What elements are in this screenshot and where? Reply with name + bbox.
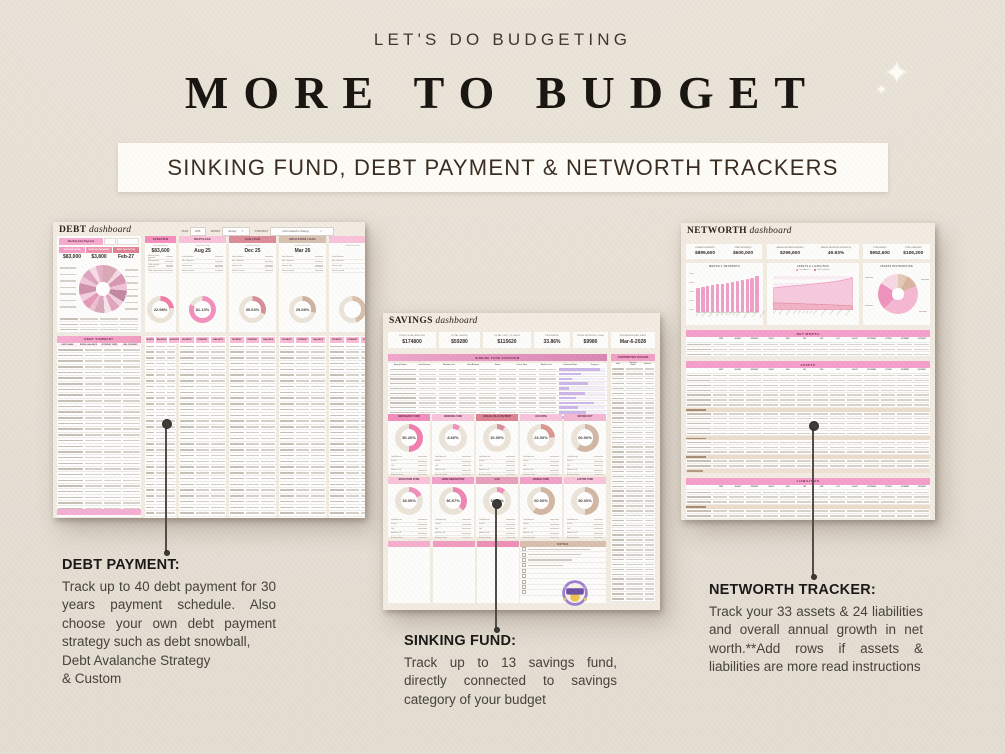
cell-value bbox=[346, 455, 360, 457]
cell-value bbox=[763, 515, 778, 516]
cell-value bbox=[296, 443, 310, 445]
cell-value bbox=[713, 442, 728, 443]
cell-value bbox=[713, 418, 728, 419]
cell-value bbox=[261, 443, 275, 445]
cell-value bbox=[230, 374, 244, 376]
column-header: INTEREST bbox=[195, 336, 211, 344]
column-header: INTEREST RATE bbox=[99, 343, 120, 348]
cell-value bbox=[864, 496, 879, 497]
cell-value bbox=[123, 372, 140, 374]
cell-value bbox=[729, 394, 744, 395]
cell-value bbox=[914, 375, 929, 376]
cell-value bbox=[346, 374, 360, 376]
row-value bbox=[550, 474, 559, 475]
cell-value bbox=[146, 478, 154, 480]
cell-value bbox=[280, 484, 294, 486]
cell-value bbox=[729, 496, 744, 497]
cell-value bbox=[626, 520, 643, 522]
cell-value bbox=[211, 455, 225, 457]
cell-value bbox=[230, 512, 244, 514]
cell-value bbox=[361, 449, 365, 451]
cell-value bbox=[296, 512, 310, 514]
cell-value bbox=[612, 539, 624, 541]
column-header: FEBRUARY bbox=[746, 487, 763, 488]
cell-value bbox=[499, 378, 516, 379]
cell-value bbox=[612, 588, 624, 590]
cell-value bbox=[797, 390, 812, 391]
cell-value bbox=[311, 501, 325, 503]
debt-stats-row: TOTAL BALANCE$83,000MONTHLY PAYMENTS$3,8… bbox=[59, 247, 139, 262]
cell-value bbox=[914, 390, 929, 391]
cell-value bbox=[361, 426, 365, 428]
cell-value bbox=[80, 329, 98, 331]
cell-value bbox=[104, 349, 121, 351]
chevron-down-icon: ▾ bbox=[320, 230, 321, 233]
control-value-box[interactable]: January▾ bbox=[222, 227, 250, 236]
row-value bbox=[315, 256, 323, 257]
cell-value bbox=[897, 423, 912, 424]
cell-value bbox=[626, 598, 643, 600]
cell-value bbox=[196, 392, 210, 394]
cell-value bbox=[797, 380, 812, 381]
annotation-body: & Custom bbox=[62, 670, 276, 688]
savings-card-header: MOVING OUT bbox=[564, 414, 606, 421]
cell-value bbox=[914, 404, 929, 405]
cell-value bbox=[499, 383, 516, 384]
cell-value bbox=[246, 466, 260, 468]
stat-label: TOTAL LEFT TO SAVE bbox=[494, 335, 520, 337]
progress-cell bbox=[559, 373, 605, 376]
axis-label bbox=[689, 291, 694, 292]
cell-value bbox=[146, 438, 154, 440]
progress-bar bbox=[559, 382, 588, 385]
cell-value bbox=[626, 437, 643, 439]
donut-percent-label: 10.00% bbox=[490, 435, 504, 440]
cell-value bbox=[626, 373, 643, 375]
cell-value bbox=[713, 515, 728, 516]
cell-value bbox=[196, 374, 210, 376]
column-header: PAYMENT bbox=[279, 336, 295, 344]
cell-value bbox=[311, 472, 325, 474]
cell-value bbox=[763, 460, 778, 461]
cell-value bbox=[914, 433, 929, 434]
cell-value bbox=[797, 354, 812, 355]
cell-value bbox=[296, 478, 310, 480]
cell-value bbox=[914, 394, 929, 395]
cell-value bbox=[85, 406, 102, 408]
cell-value bbox=[361, 374, 365, 376]
cell-value bbox=[146, 397, 154, 399]
cell-value bbox=[645, 500, 654, 502]
cell-value bbox=[296, 374, 310, 376]
sheet-title: SAVINGS dashboard bbox=[389, 316, 477, 326]
cell-value bbox=[311, 380, 325, 382]
column-header: OCTOBER bbox=[880, 339, 897, 340]
row-label-bar bbox=[687, 501, 711, 502]
cell-value bbox=[729, 399, 744, 400]
cell-value bbox=[390, 374, 416, 375]
cell-value bbox=[211, 449, 225, 451]
cell-value bbox=[881, 496, 896, 497]
cell-value bbox=[58, 377, 83, 379]
cell-value bbox=[813, 390, 828, 391]
contribution-tracker-table: DateSavings NameAmount bbox=[611, 363, 655, 602]
column-header: MARCH bbox=[763, 339, 780, 340]
sinking-fund-table: Savings NameGoal AmountMonthly GoalStart… bbox=[388, 363, 607, 420]
cell-value bbox=[280, 386, 294, 388]
cell-value bbox=[311, 432, 325, 434]
cell-value bbox=[499, 407, 516, 408]
axis-tick: DECEMBER bbox=[845, 312, 854, 313]
cell-value bbox=[797, 375, 812, 376]
cell-value bbox=[330, 403, 344, 405]
savings-card-header: VACATION bbox=[520, 414, 562, 421]
cell-value bbox=[100, 324, 118, 326]
table-header-row: Savings NameGoal AmountMonthly GoalStart… bbox=[388, 363, 607, 368]
debt-summary-panel: Monthly Extra PaymentTOTAL BALANCE$83,00… bbox=[57, 236, 141, 332]
cell-value bbox=[156, 374, 164, 376]
cell-value bbox=[146, 415, 154, 417]
cell-value bbox=[419, 388, 436, 389]
cell-value bbox=[156, 507, 164, 509]
progress-bar bbox=[559, 392, 584, 395]
cell-value bbox=[914, 510, 929, 511]
row-label: Goal Amount bbox=[523, 456, 534, 458]
cell-value bbox=[479, 402, 496, 403]
savings-card-donut: 60.00% bbox=[527, 487, 555, 515]
axis-tick: JANUARY bbox=[701, 314, 708, 315]
cell-value bbox=[797, 501, 812, 502]
cell-value bbox=[146, 374, 154, 376]
table-banner: NET WORTH bbox=[686, 330, 930, 337]
chart-legend: Total AssetsTotal Liabilities bbox=[767, 269, 859, 271]
cell-value bbox=[180, 472, 194, 474]
cell-value bbox=[146, 369, 154, 371]
cell-value bbox=[780, 404, 795, 405]
cell-value bbox=[612, 598, 624, 600]
cell-value bbox=[180, 397, 194, 399]
column-header: JUNE bbox=[813, 339, 830, 340]
cell-value bbox=[763, 496, 778, 497]
cell-value bbox=[280, 489, 294, 491]
stat-cell: CURRENT NETWORTH$899,600 bbox=[686, 244, 724, 259]
cell-value bbox=[311, 443, 325, 445]
cell-value bbox=[813, 399, 828, 400]
table-header-row: DEBT NAMEINITIAL BALANCEINTEREST RATEMIN… bbox=[57, 343, 141, 348]
cell-value bbox=[645, 510, 654, 512]
cell-value bbox=[104, 394, 121, 396]
cell-value bbox=[713, 344, 728, 345]
row-label: Saved bbox=[479, 460, 484, 462]
column-header: NOVEMBER bbox=[897, 339, 914, 340]
row-value bbox=[594, 524, 603, 525]
stat-label: START NETWORTH bbox=[735, 247, 752, 249]
row-label: Estimate Date bbox=[479, 537, 491, 539]
cell-value bbox=[361, 409, 365, 411]
cell-value bbox=[645, 559, 654, 561]
cell-value bbox=[104, 468, 121, 470]
column-header: Savings Name bbox=[388, 363, 412, 368]
cell-value bbox=[311, 403, 325, 405]
legend-item: Total Liabilities bbox=[814, 269, 830, 271]
cell-value bbox=[180, 380, 194, 382]
cell-value bbox=[746, 451, 761, 452]
cell-value bbox=[104, 497, 121, 499]
cell-value bbox=[261, 501, 275, 503]
cell-value bbox=[763, 375, 778, 376]
cell-value bbox=[626, 554, 643, 556]
stat-label: TOTAL GOAL AMOUNT bbox=[399, 335, 425, 337]
cell-value bbox=[713, 413, 728, 414]
cell-value bbox=[729, 404, 744, 405]
cell-value bbox=[763, 465, 778, 466]
cell-value bbox=[230, 484, 244, 486]
cell-value bbox=[311, 507, 325, 509]
cell-value bbox=[763, 447, 778, 448]
cell-value bbox=[780, 390, 795, 391]
cell-value bbox=[645, 530, 654, 532]
cell-value bbox=[539, 397, 556, 398]
cell-value bbox=[746, 515, 761, 516]
cell-value bbox=[729, 465, 744, 466]
cell-value bbox=[780, 423, 795, 424]
cell-value bbox=[330, 484, 344, 486]
cell-value bbox=[361, 415, 365, 417]
savings-card-header: WEDDING FUND bbox=[432, 414, 474, 421]
cell-value bbox=[180, 466, 194, 468]
stat-value: Mar-6-2028 bbox=[620, 339, 646, 345]
cell-value bbox=[645, 471, 654, 473]
cell-value bbox=[813, 501, 828, 502]
cell-value bbox=[864, 394, 879, 395]
sinking-annotation-line bbox=[495, 505, 497, 629]
cell-value bbox=[346, 478, 360, 480]
cell-value bbox=[261, 403, 275, 405]
cell-value bbox=[746, 394, 761, 395]
cell-value bbox=[123, 451, 140, 453]
cell-value bbox=[156, 484, 164, 486]
column-header: JUNE bbox=[813, 370, 830, 371]
cell-value bbox=[713, 451, 728, 452]
cell-value bbox=[612, 422, 624, 424]
promo-poster: LET'S DO BUDGETING MORE TO BUDGET ✦ ✦ SI… bbox=[0, 0, 1005, 754]
debt-card-row: Total interest saved bbox=[148, 269, 173, 274]
row-label: Interest rate bbox=[232, 265, 242, 267]
cell-value bbox=[612, 427, 624, 429]
row-value bbox=[165, 261, 173, 262]
cell-value bbox=[58, 491, 83, 493]
cell-value bbox=[280, 449, 294, 451]
cell-value bbox=[311, 346, 325, 348]
cell-value bbox=[280, 415, 294, 417]
row-label: Months Left bbox=[567, 532, 577, 534]
savings-card-rows: Goal AmountSavedLeftMonths LeftEstimate … bbox=[391, 518, 427, 541]
cell-value bbox=[211, 415, 225, 417]
cell-value bbox=[280, 392, 294, 394]
control-value: Debt Avalanche Strategy bbox=[283, 230, 309, 233]
row-label: Min. Payment bbox=[182, 260, 194, 262]
savings-card: HOME RENOVATION36.67%Goal AmountSavedLef… bbox=[432, 477, 474, 537]
cell-value bbox=[797, 404, 812, 405]
cell-value bbox=[296, 426, 310, 428]
cell-value bbox=[296, 507, 310, 509]
cell-value bbox=[813, 413, 828, 414]
cell-value bbox=[346, 363, 360, 365]
row-label: Monthly extra payment bbox=[148, 255, 166, 259]
cell-value bbox=[346, 461, 360, 463]
control-value-box[interactable]: 2025 bbox=[190, 227, 206, 236]
cell-value bbox=[830, 460, 845, 461]
cell-value bbox=[156, 512, 164, 514]
cell-value bbox=[612, 534, 624, 536]
cell-value bbox=[211, 403, 225, 405]
cell-value bbox=[897, 496, 912, 497]
cell-value bbox=[864, 380, 879, 381]
networth-annotation: NETWORTH TRACKER: Track your 33 assets &… bbox=[709, 581, 923, 677]
cell-value bbox=[361, 392, 365, 394]
cell-value bbox=[280, 403, 294, 405]
cell-value bbox=[361, 420, 365, 422]
cell-value bbox=[479, 393, 496, 394]
row-label: Estimate Date bbox=[391, 474, 403, 476]
debt-card-header bbox=[329, 236, 365, 243]
cell-value bbox=[626, 530, 643, 532]
cell-value bbox=[797, 349, 812, 350]
cell-value bbox=[626, 574, 643, 576]
cell-value bbox=[58, 383, 83, 385]
cell-value bbox=[612, 456, 624, 458]
cell-value bbox=[296, 397, 310, 399]
cell-value bbox=[612, 569, 624, 571]
cell-value bbox=[626, 534, 643, 536]
column-header: Estimated Date bbox=[558, 363, 582, 368]
row-label: Min. Payment bbox=[232, 260, 244, 262]
cell-value bbox=[330, 501, 344, 503]
payment-schedule-table: PAYMENTINTERESTBALANCE bbox=[179, 336, 226, 518]
row-label: Min. Payment bbox=[332, 260, 344, 262]
cell-value bbox=[123, 502, 140, 504]
cell-value bbox=[864, 354, 879, 355]
cell-value bbox=[85, 411, 102, 413]
cell-value bbox=[330, 363, 344, 365]
cell-value bbox=[156, 438, 164, 440]
row-label: Goal Amount bbox=[435, 519, 446, 521]
stat-label: ESTIMATED END DATE bbox=[620, 335, 647, 337]
cell-value bbox=[459, 407, 476, 408]
cell-value bbox=[261, 478, 275, 480]
cell-value bbox=[146, 501, 154, 503]
cell-value bbox=[211, 420, 225, 422]
cell-value bbox=[246, 489, 260, 491]
cell-value bbox=[419, 397, 436, 398]
cell-value bbox=[167, 415, 175, 417]
cell-value bbox=[645, 446, 654, 448]
cell-value bbox=[519, 407, 536, 408]
donut-hole: 8.60% bbox=[445, 429, 462, 446]
cell-value bbox=[881, 344, 896, 345]
cell-value bbox=[897, 460, 912, 461]
cell-value bbox=[830, 510, 845, 511]
cell-value bbox=[167, 512, 175, 514]
debt-card-rows: Initial balanceMin. PaymentInterest rate… bbox=[232, 255, 273, 273]
stat-block: ANNUAL NETWORTH GROWTH$299,600ANNUAL NET… bbox=[767, 244, 859, 259]
column-header: DEBT NAME bbox=[57, 343, 78, 348]
row-label-bar bbox=[687, 442, 711, 443]
cell-value bbox=[85, 446, 102, 448]
donut-label bbox=[125, 269, 138, 271]
axis-tick: NOVEMBER bbox=[836, 312, 845, 313]
cell-value bbox=[230, 380, 244, 382]
cell-value bbox=[261, 346, 275, 348]
cell-value bbox=[361, 380, 365, 382]
cell-value bbox=[830, 418, 845, 419]
cell-value bbox=[196, 443, 210, 445]
bar bbox=[741, 280, 745, 312]
cell-value bbox=[881, 465, 896, 466]
cell-value bbox=[881, 433, 896, 434]
row-value bbox=[550, 533, 559, 534]
control-value-box[interactable]: Debt Avalanche Strategy▾ bbox=[270, 227, 334, 236]
cell-value bbox=[881, 515, 896, 516]
cell-value bbox=[123, 360, 140, 362]
cell-value bbox=[626, 466, 643, 468]
extra-payment-value-box[interactable] bbox=[117, 238, 139, 245]
bar bbox=[736, 281, 740, 312]
donut-label bbox=[865, 305, 873, 306]
cell-value bbox=[645, 490, 654, 492]
savings-card-header: MOBILE FUND bbox=[520, 477, 562, 484]
cell-value bbox=[296, 438, 310, 440]
cell-value bbox=[211, 392, 225, 394]
cell-value bbox=[296, 351, 310, 353]
cell-value bbox=[58, 434, 83, 436]
cell-value bbox=[280, 363, 294, 365]
stat-block: TOTAL ASSETS$952,600TOTAL LIABILITIES$10… bbox=[863, 244, 930, 259]
cell-value bbox=[847, 447, 862, 448]
cell-value bbox=[645, 588, 654, 590]
row-label-bar bbox=[687, 354, 711, 355]
bar bbox=[726, 283, 730, 312]
cell-value bbox=[246, 495, 260, 497]
cell-value bbox=[85, 383, 102, 385]
cell-value bbox=[645, 466, 654, 468]
cell-value bbox=[156, 380, 164, 382]
cell-value bbox=[246, 369, 260, 371]
row-label: Estimate Date bbox=[391, 537, 403, 539]
cell-value bbox=[612, 432, 624, 434]
cell-value bbox=[864, 418, 879, 419]
cell-value bbox=[830, 447, 845, 448]
cell-value bbox=[914, 423, 929, 424]
progress-bar bbox=[559, 397, 575, 400]
cell-value bbox=[713, 433, 728, 434]
cell-value bbox=[246, 484, 260, 486]
cell-value bbox=[196, 403, 210, 405]
progress-bar bbox=[559, 368, 599, 371]
stat-value: $106,200 bbox=[903, 251, 923, 256]
cell-value bbox=[58, 474, 83, 476]
cell-value bbox=[156, 397, 164, 399]
annotation-body: Track up to 40 debt payment for 30 years… bbox=[62, 578, 276, 652]
cell-value bbox=[180, 392, 194, 394]
cell-value bbox=[296, 472, 310, 474]
cell-value bbox=[439, 378, 456, 379]
networth-title-word: dashboard bbox=[747, 226, 792, 236]
row-value bbox=[418, 537, 427, 538]
cell-value bbox=[280, 420, 294, 422]
cell-value bbox=[612, 398, 624, 400]
cell-value bbox=[479, 378, 496, 379]
